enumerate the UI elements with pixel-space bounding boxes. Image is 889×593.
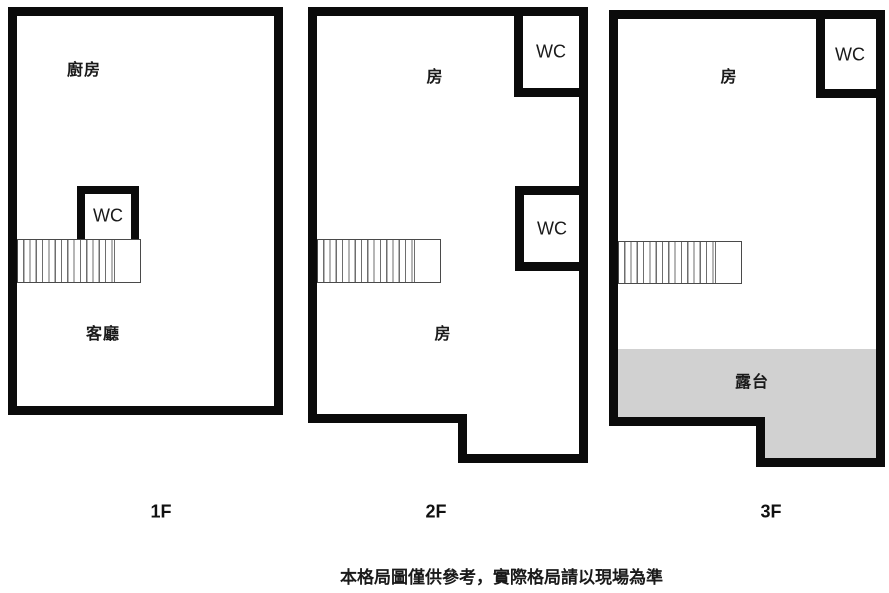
1f-wall-bottom [8,406,283,415]
3f-terrace-label: 露台 [735,368,769,392]
2f-wc-top-wall-bottom [514,88,588,97]
3f-floor-label: 3F [760,502,781,523]
disclaimer-text: 本格局圖僅供參考，實際格局請以現場為準 [340,563,663,588]
2f-stairs [317,239,441,283]
1f-wc-wall-top [77,186,139,194]
2f-wc-middle-label: WC [537,219,567,240]
2f-room-lower-label: 房 [434,320,451,344]
2f-wc-top-wall-left [514,15,523,97]
1f-living-room-label: 客廳 [86,320,120,344]
2f-stair-treads [318,240,415,282]
3f-wc-wall-left [816,18,825,98]
1f-wall-left [8,7,17,415]
3f-room-label: 房 [720,63,737,87]
2f-wc-middle-wall-left [515,186,524,271]
1f-kitchen-label: 廚房 [67,56,101,80]
3f-wall-top [609,10,885,19]
2f-wc-top-label: WC [536,42,566,63]
2f-wall-bottom-left [308,414,466,423]
1f-wall-top [8,7,283,16]
2f-wall-right [579,7,588,463]
1f-wall-right [274,7,283,415]
2f-room-upper-label: 房 [426,63,443,87]
2f-wall-bottom-right [458,454,588,463]
2f-wall-left [308,7,317,423]
2f-wc-middle-wall-bottom [515,262,587,271]
3f-stairs [618,241,742,284]
1f-stair-treads [18,240,115,282]
1f-wc-wall-left [77,186,85,239]
3f-wc-label: WC [835,45,865,66]
3f-wall-bottom-right [756,458,885,467]
3f-terrace-area-lower [765,417,876,458]
1f-stairs [17,239,141,283]
3f-wc-wall-bottom [816,89,885,98]
1f-wc-wall-right [131,186,139,239]
2f-wall-top [308,7,588,16]
3f-stair-treads [619,242,716,283]
floor-plan-canvas: WC 廚房 客廳 1F WC WC 房 房 2F [0,0,889,593]
3f-wall-bottom-left [609,417,765,426]
2f-floor-label: 2F [425,502,446,523]
3f-wall-left [609,10,618,426]
3f-wall-right [876,10,885,467]
1f-floor-label: 1F [150,502,171,523]
2f-wc-middle-wall-top [515,186,587,195]
1f-wc-label: WC [93,206,123,227]
